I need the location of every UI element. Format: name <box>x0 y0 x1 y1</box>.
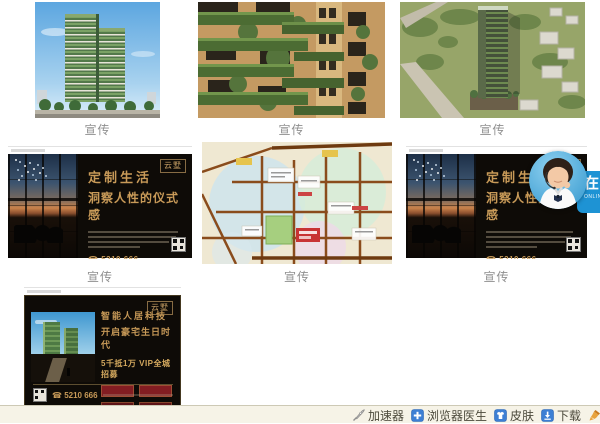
banner-phone: ☎ 5210 666 <box>486 255 579 259</box>
banner-body-text-lines <box>88 231 178 248</box>
banner-subtitle: 5千抵1万 VIP全城招募 <box>101 358 172 380</box>
banner-interior-photo <box>406 154 476 258</box>
browser-status-bar: 加速器 浏览器医生 皮肤 下载 <box>0 405 600 423</box>
statusbar-item-label: 浏览器医生 <box>427 407 487 424</box>
image-caption: 宣传 <box>202 270 392 284</box>
image-caption: 宣传 <box>406 270 587 284</box>
people-silhouettes <box>14 225 63 244</box>
brand-logo: 云墅 <box>160 159 186 173</box>
gallery-image-banner-custom-life-1[interactable]: 云墅 定制生活 洞察人性的仪式感 ☎ 5210 666 <box>8 146 192 259</box>
download-icon <box>541 409 554 422</box>
phone-number: 5210 666 <box>499 255 536 259</box>
people-silhouettes <box>412 225 461 244</box>
gallery-image-green-tower[interactable] <box>35 2 160 118</box>
banner-title-line1: 智能人居科技 <box>101 309 172 322</box>
banner-title-line2: 开启豪宅生日时代 <box>101 325 172 351</box>
banner-phone: ☎ 5210 666 <box>88 255 184 259</box>
browser-page: { "gallery": { "cards": [ {"caption": "宣… <box>0 0 600 423</box>
statusbar-item-skin[interactable]: 皮肤 <box>494 407 534 424</box>
gallery-image-balcony-closeup[interactable] <box>198 2 385 118</box>
green-tower-render <box>35 2 160 118</box>
micro-filename-text <box>27 290 61 293</box>
phone-number: 5210 666 <box>101 255 138 259</box>
statusbar-item-browser-doctor[interactable]: 浏览器医生 <box>411 407 487 424</box>
image-caption: 宣传 <box>198 123 385 137</box>
skin-icon <box>494 409 507 422</box>
phone-number: 5210 666 <box>64 391 97 400</box>
statusbar-item-download[interactable]: 下载 <box>541 407 581 424</box>
clean-brush-icon <box>588 409 600 422</box>
balcony-closeup-render <box>198 2 385 118</box>
statusbar-item-label: 皮肤 <box>510 407 534 424</box>
phone-icon: ☎ <box>88 255 98 259</box>
banner-building-photo <box>31 312 95 382</box>
tab-sublabel: ONLINE <box>584 194 600 200</box>
banner-interior-photo <box>8 154 78 258</box>
statusbar-item-label: 加速器 <box>368 407 404 424</box>
status-bar-items: 加速器 浏览器医生 皮肤 下载 <box>352 407 600 423</box>
banner-title-line2: 洞察人性的仪式感 <box>88 189 184 223</box>
qr-code <box>171 237 186 252</box>
location-map <box>202 142 392 264</box>
banner-custom-life: 云墅 定制生活 洞察人性的仪式感 ☎ 5210 666 <box>8 154 192 258</box>
statusbar-item-clear-traces[interactable]: 清除痕迹 <box>588 407 600 424</box>
gallery-image-aerial-tower[interactable] <box>400 2 585 118</box>
banner-smart-living: 云墅 智能人居科技 开启豪宅生日时代 5千抵1万 VIP全城招募 ☎ 5210 … <box>24 295 181 407</box>
micro-filename-text <box>11 149 45 152</box>
gallery-image-banner-smart-living[interactable]: 云墅 智能人居科技 开启豪宅生日时代 5千抵1万 VIP全城招募 ☎ 5210 … <box>24 287 181 408</box>
customer-service-avatar[interactable] <box>529 151 587 209</box>
person-silhouette <box>67 368 70 376</box>
browser-doctor-icon <box>411 409 424 422</box>
banner-bottom-strip: ☎ 5210 666 <box>33 384 173 402</box>
service-agent-illustration <box>529 151 587 209</box>
image-caption: 宣传 <box>8 270 192 284</box>
gallery-image-location-map[interactable] <box>202 142 392 264</box>
aerial-tower-render <box>400 2 585 118</box>
image-caption: 宣传 <box>400 123 585 137</box>
statusbar-item-label: 下载 <box>557 407 581 424</box>
qr-code <box>566 237 581 252</box>
banner-text-area: 云墅 定制生活 洞察人性的仪式感 ☎ 5210 666 <box>78 154 192 258</box>
statusbar-item-accelerator[interactable]: 加速器 <box>352 407 404 424</box>
phone-icon: ☎ <box>486 255 496 259</box>
image-caption: 宣传 <box>35 123 160 137</box>
sky <box>31 312 95 354</box>
banner-address-line <box>103 394 173 396</box>
banner-body-text-lines <box>486 231 573 248</box>
chandelier-sparkles <box>413 159 415 161</box>
qr-code <box>33 388 47 402</box>
chandelier-sparkles <box>15 159 17 161</box>
micro-filename-text <box>409 149 443 152</box>
accelerator-icon <box>352 409 365 422</box>
phone-icon: ☎ <box>52 391 62 400</box>
banner-phone: ☎ 5210 666 <box>52 391 98 400</box>
